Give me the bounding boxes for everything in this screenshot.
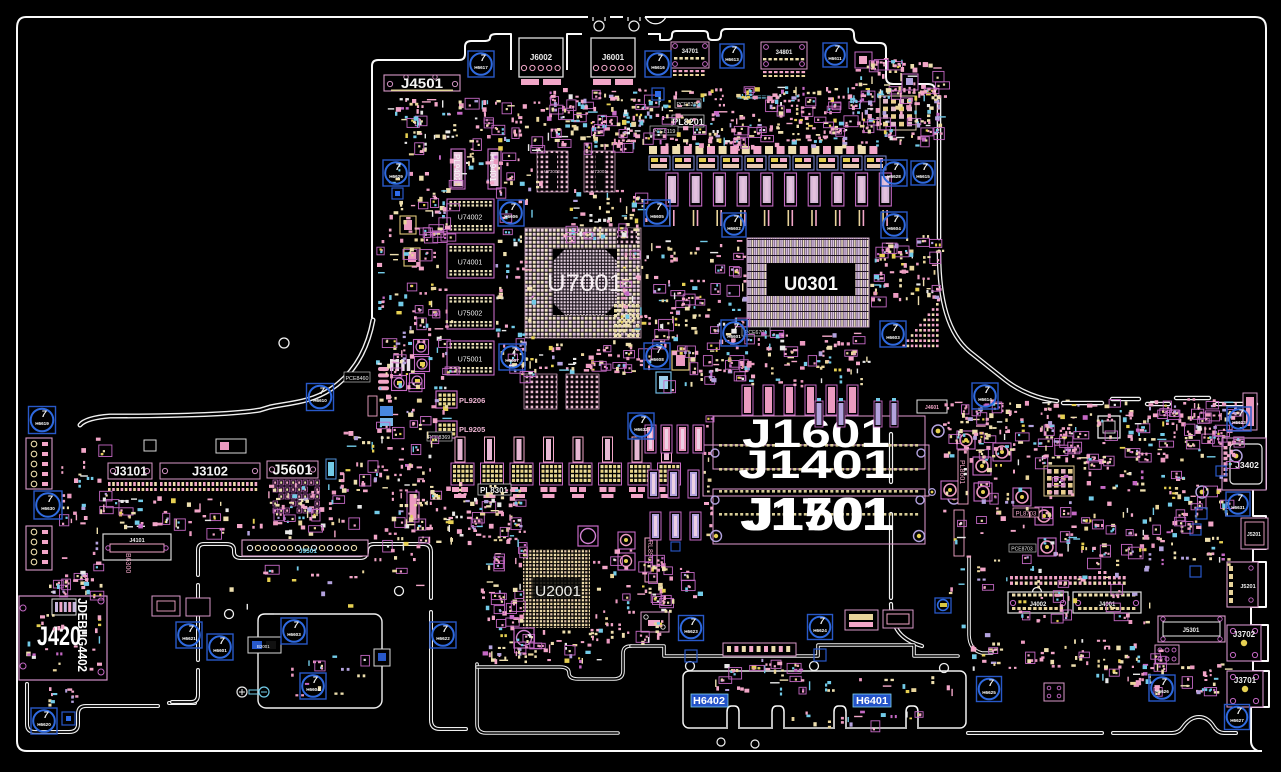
svg-text:U7001: U7001 xyxy=(547,270,623,297)
svg-text:PCE8119: PCE8119 xyxy=(653,129,676,135)
svg-text:U75001: U75001 xyxy=(458,357,483,364)
svg-text:B2001: B2001 xyxy=(257,644,270,649)
svg-text:J5601: J5601 xyxy=(273,462,313,479)
svg-text:34701: 34701 xyxy=(682,49,699,55)
svg-text:J1401: J1401 xyxy=(738,443,894,487)
svg-text:H6402: H6402 xyxy=(693,696,725,707)
svg-text:J9501: J9501 xyxy=(299,548,317,555)
svg-text:PCE8703: PCE8703 xyxy=(1011,547,1033,553)
svg-text:J5201: J5201 xyxy=(1240,584,1255,590)
svg-text:PL9206: PL9206 xyxy=(459,396,485,405)
svg-text:34801: 34801 xyxy=(776,50,793,56)
svg-text:J6002: J6002 xyxy=(530,53,553,62)
svg-text:J3701: J3701 xyxy=(1234,676,1257,685)
svg-text:JDEBUG4402: JDEBUG4402 xyxy=(75,598,90,672)
svg-text:J4101: J4101 xyxy=(129,538,144,544)
svg-text:U75002: U75002 xyxy=(458,311,483,318)
svg-text:U2001: U2001 xyxy=(535,583,581,600)
svg-text:PCE8460: PCE8460 xyxy=(345,376,368,382)
svg-text:J5301: J5301 xyxy=(1183,628,1200,634)
svg-text:U74001: U74001 xyxy=(458,260,483,267)
svg-text:J3702: J3702 xyxy=(1233,630,1256,639)
svg-text:J1501: J1501 xyxy=(744,488,894,540)
svg-text:J3101: J3101 xyxy=(113,463,147,478)
svg-text:PL9205: PL9205 xyxy=(459,425,485,434)
svg-text:J4501: J4501 xyxy=(401,75,443,91)
svg-text:J4002: J4002 xyxy=(1030,602,1047,608)
svg-text:H6401: H6401 xyxy=(856,696,888,707)
svg-text:J4601: J4601 xyxy=(925,405,939,411)
svg-text:PL8601: PL8601 xyxy=(958,460,965,484)
svg-text:PL8703: PL8703 xyxy=(1016,512,1037,518)
svg-text:B6300: B6300 xyxy=(124,553,131,573)
svg-text:PL9402: PL9402 xyxy=(452,154,461,182)
svg-text:J3102: J3102 xyxy=(192,463,228,478)
svg-text:J5201: J5201 xyxy=(1247,532,1261,538)
svg-text:U73002: U73002 xyxy=(544,169,560,174)
svg-text:J6001: J6001 xyxy=(602,53,625,62)
svg-text:U73001: U73001 xyxy=(591,169,607,174)
svg-text:U74002: U74002 xyxy=(458,215,483,222)
svg-text:U0301: U0301 xyxy=(784,274,838,295)
